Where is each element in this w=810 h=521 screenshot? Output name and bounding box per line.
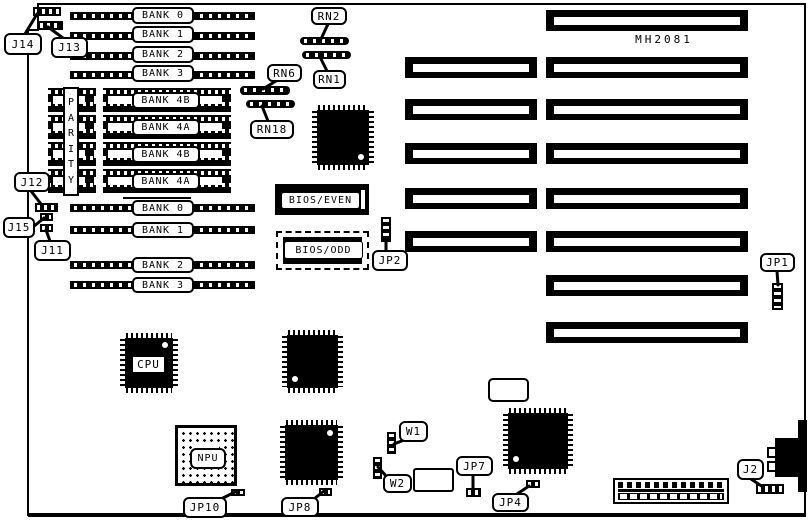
rn2-label: RN2: [311, 7, 347, 25]
rn18-text: RN18: [257, 123, 288, 136]
jp2-text: JP2: [379, 254, 402, 267]
leader-rn1: [320, 57, 327, 71]
leader-rn18: [262, 106, 268, 121]
connector-label-j14: J14: [4, 33, 42, 55]
j15-text: J15: [8, 221, 31, 234]
w2-label: W2: [383, 474, 412, 493]
rn2-text: RN2: [318, 10, 341, 23]
rn18-label: RN18: [250, 120, 294, 139]
jp4-label: JP4: [492, 493, 529, 512]
rn6-label: RN6: [267, 64, 302, 82]
w1-text: W1: [406, 425, 421, 438]
jp10-text: JP10: [190, 501, 221, 514]
jp7-label: JP7: [456, 456, 493, 476]
leader-j12: [31, 191, 41, 204]
connector-label-j15: J15: [3, 217, 35, 238]
connector-label-j12: J12: [14, 172, 50, 192]
rn6-text: RN6: [273, 67, 296, 80]
jp8-label: JP8: [281, 497, 319, 517]
j2-text: J2: [743, 463, 758, 476]
jp7-text: JP7: [463, 460, 486, 473]
leader-j2: [751, 479, 763, 487]
jp10-label: JP10: [183, 497, 227, 518]
j13-text: J13: [58, 41, 81, 54]
j12-text: J12: [21, 176, 44, 189]
j14-text: J14: [12, 38, 35, 51]
w1-label: W1: [399, 421, 428, 442]
w2-text: W2: [390, 477, 405, 490]
motherboard-diagram: J14 J13 BANK 0 BANK 1 BANK 2 BANK 3 PARI…: [0, 0, 810, 521]
jp1-label: JP1: [760, 253, 795, 272]
leader-jp1: [777, 271, 778, 285]
connector-label-j11: J11: [34, 240, 71, 261]
rn1-label: RN1: [313, 70, 346, 89]
leader-rn6: [263, 81, 276, 89]
j2-label: J2: [737, 459, 764, 480]
leader-rn2: [321, 24, 328, 39]
jp8-text: JP8: [289, 501, 312, 514]
connector-label-j13: J13: [51, 37, 88, 58]
jp1-text: JP1: [766, 256, 789, 269]
j11-text: J11: [41, 244, 64, 257]
rn1-text: RN1: [318, 73, 341, 86]
jp4-text: JP4: [499, 496, 522, 509]
jp2-label: JP2: [372, 250, 408, 271]
